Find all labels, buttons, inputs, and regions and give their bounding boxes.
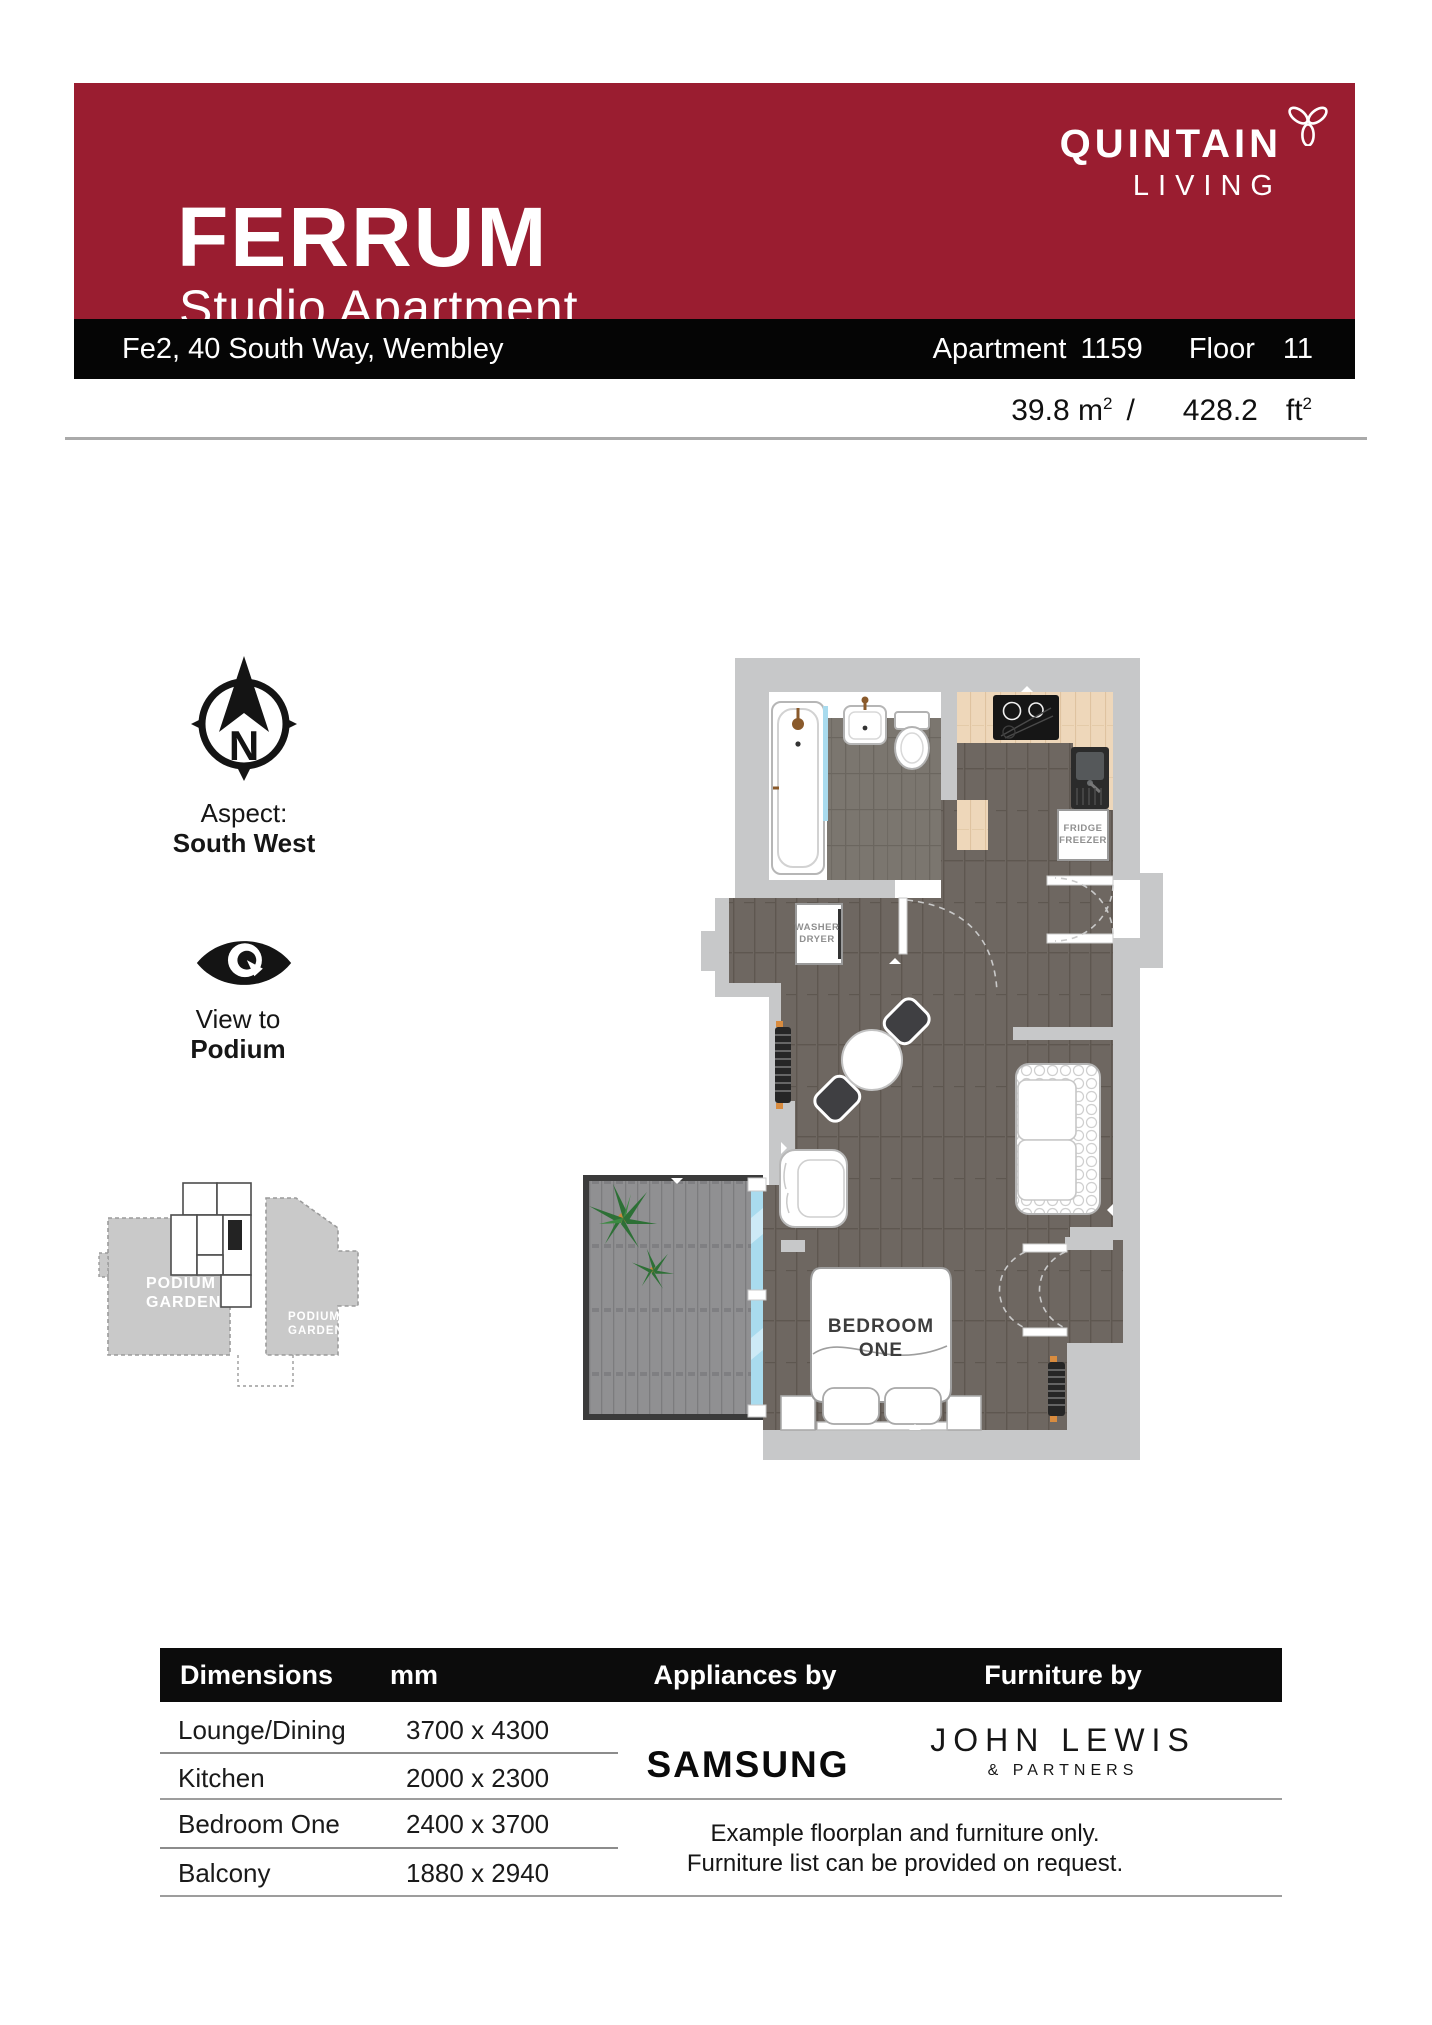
svg-text:GARDEN: GARDEN [288,1325,344,1337]
trefoil-flower-icon [1286,100,1330,151]
row-separator [160,1798,1282,1800]
svg-text:BEDROOM: BEDROOM [828,1316,934,1337]
floorplan-page: { "header": { "title": "FERRUM", "subtit… [0,0,1432,2025]
disclaimer-line2: Furniture list can be provided on reques… [595,1850,1215,1878]
apartment-number: 1159 [1080,333,1142,366]
row-separator [160,1847,618,1849]
apartment-floor-info: Apartment 1159 Floor 11 [933,333,1313,366]
room-name: Bedroom One [178,1809,340,1839]
view-value: Podium [88,1034,388,1065]
john-lewis-logo: JOHN LEWIS [930,1722,1196,1759]
development-title: FERRUM [177,189,548,286]
floorplan-drawing: FRIDGE FREEZER WASHER DRYER [565,648,1165,1473]
room-size: 3700 x 4300 [406,1715,549,1746]
samsung-logo: SAMSUNG [646,1744,849,1786]
apartment-label: Apartment [933,333,1067,366]
svg-text:FREEZER: FREEZER [1059,835,1107,846]
svg-text:ONE: ONE [859,1340,903,1361]
john-lewis-partners: & PARTNERS [988,1762,1139,1780]
header-furniture: Furniture by [984,1660,1142,1691]
sofa [1016,1064,1100,1214]
room-size: 2400 x 3700 [406,1809,549,1840]
compass-north-icon: N [184,650,304,787]
svg-text:N: N [229,722,259,769]
table-row: Balcony 1880 x 2940 [178,1858,638,1889]
table-row: Kitchen 2000 x 2300 [178,1763,638,1794]
washer-dryer: WASHER DRYER [795,904,842,964]
radiator-living [775,1021,791,1109]
radiator-bedroom [1048,1356,1065,1422]
bathtub-icon [772,702,828,874]
site-minimap: PODIUM GARDEN PODIUM GARDEN [88,1158,368,1415]
room-size: 1880 x 2940 [406,1858,549,1889]
room-name: Lounge/Dining [178,1715,346,1745]
view-label: View to [88,1004,388,1035]
floor-number: 11 [1283,333,1313,366]
address-text: Fe2, 40 South Way, Wembley [122,333,503,366]
svg-text:GARDEN: GARDEN [146,1294,221,1311]
svg-text:WASHER: WASHER [795,922,840,933]
aspect-value: South West [94,828,394,859]
brand-name: QUINTAIN [1010,122,1282,167]
area-summary: 39.8 m2 / 428.2 ft2 [0,394,1312,428]
address-bar: Fe2, 40 South Way, Wembley Apartment 115… [74,319,1355,379]
fridge-freezer: FRIDGE FREEZER [1058,810,1108,860]
aspect-label: Aspect: [94,798,394,829]
table-row: Lounge/Dining 3700 x 4300 [178,1715,638,1746]
svg-text:DRYER: DRYER [799,934,834,945]
area-separator: / [1126,394,1134,428]
header-mm: mm [390,1660,438,1691]
metric-area: 39.8 m2 [1011,394,1112,428]
balcony [586,1178,766,1417]
kitchen-counter-return [957,800,988,850]
svg-text:PODIUM: PODIUM [288,1311,340,1323]
svg-text:FRIDGE: FRIDGE [1064,823,1103,834]
toilet-icon [895,712,929,769]
cooktop-icon [993,695,1059,740]
room-name: Kitchen [178,1763,265,1793]
header-appliances: Appliances by [653,1660,836,1691]
row-separator [160,1752,618,1754]
disclaimer-line1: Example floorplan and furniture only. [595,1820,1215,1848]
brand-name-line2: LIVING [1010,170,1282,203]
table-header: Dimensions mm Appliances by Furniture by [160,1648,1282,1702]
floor-label: Floor [1189,333,1255,366]
imperial-area-unit: ft2 [1286,394,1312,428]
imperial-area-value: 428.2 [1183,394,1258,428]
svg-text:PODIUM: PODIUM [146,1275,216,1292]
table-bottom-rule [160,1895,1282,1897]
armchair [780,1150,847,1227]
room-name: Balcony [178,1858,271,1888]
table-row: Bedroom One 2400 x 3700 [178,1809,638,1840]
eye-icon [192,930,296,1001]
divider-rule [65,437,1367,440]
room-size: 2000 x 2300 [406,1763,549,1794]
header-dimensions: Dimensions [180,1660,333,1691]
kitchen-sink-icon [1071,747,1109,809]
